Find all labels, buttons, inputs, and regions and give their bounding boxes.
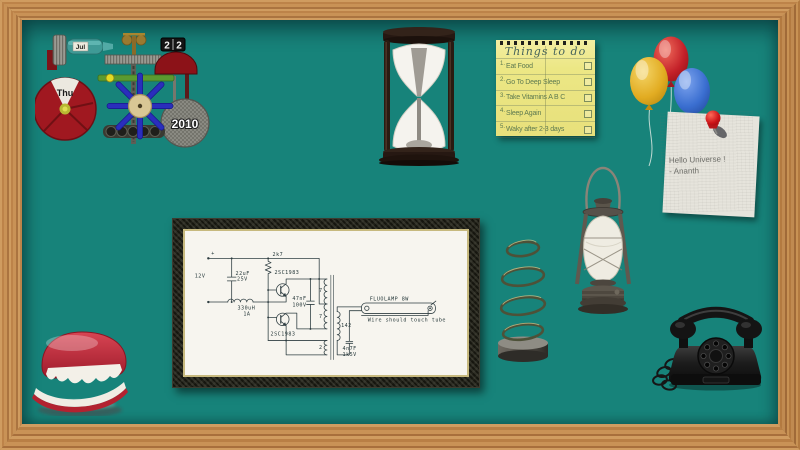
phone-rotary-dial bbox=[698, 338, 734, 374]
year-label: 2010 bbox=[172, 117, 199, 131]
todo-note-widget: Things to do 1. Eat Food 2. Go To Deep S… bbox=[496, 40, 595, 136]
todo-item-text: Eat Food bbox=[506, 63, 533, 70]
chalkboard-scene: Thu Jul bbox=[0, 0, 800, 450]
hourglass bbox=[376, 24, 462, 166]
note-crease bbox=[545, 46, 546, 134]
todo-item: 5. Waky after 2-3 days bbox=[496, 122, 595, 138]
wooden-frame-bottom bbox=[0, 424, 800, 450]
transistor-top-label: 2SC1983 bbox=[274, 270, 299, 276]
cap3-rating: 1k5V bbox=[343, 352, 357, 358]
cap1-rating: 25V bbox=[237, 276, 248, 282]
gear-ribbon bbox=[105, 55, 161, 64]
todo-item: 2. Go To Deep Sleep bbox=[496, 75, 595, 91]
lantern bbox=[559, 146, 649, 318]
todo-title: Things to do bbox=[496, 45, 595, 59]
day-label: Thu bbox=[57, 88, 74, 98]
todo-item-text: Take Vitamins A B C bbox=[506, 94, 565, 101]
framed-circuit-picture: 12V + 22uF 25V 330uH 1A 2k7 2SC1983 2SC1… bbox=[172, 218, 480, 388]
lamp-note: Wire should touch tube bbox=[368, 318, 446, 324]
todo-item-text: Sleep Again bbox=[506, 110, 541, 117]
pinned-note-widget: Hello Universe ! - Ananth bbox=[661, 112, 757, 215]
todo-item: 1. Eat Food bbox=[496, 59, 595, 75]
todo-item: 4. Sleep Again bbox=[496, 106, 595, 122]
winding-top-label: 7 bbox=[319, 288, 323, 294]
todo-checkbox[interactable] bbox=[584, 110, 592, 118]
winding-secondary-label: 142 bbox=[341, 323, 352, 329]
hourglass-icon bbox=[379, 27, 459, 166]
circuit-schematic: 12V + 22uF 25V 330uH 1A 2k7 2SC1983 2SC1… bbox=[185, 231, 467, 375]
note-line-2: - Ananth bbox=[669, 165, 726, 177]
resistor-label: 2k7 bbox=[273, 252, 284, 258]
spring-sculpture bbox=[489, 227, 557, 363]
wooden-frame-top bbox=[0, 0, 800, 20]
todo-item-text: Go To Deep Sleep bbox=[506, 79, 560, 86]
todo-item-text: Waky after 2-3 days bbox=[506, 126, 564, 133]
cap3-value: 4n7F bbox=[343, 346, 357, 352]
roller-chain bbox=[103, 125, 165, 138]
lantern-icon bbox=[577, 168, 629, 314]
mechanical-calendar-widget: Thu Jul bbox=[35, 28, 220, 150]
winding-mid-label: 7 bbox=[319, 314, 323, 320]
date-digit-left: 2 bbox=[164, 41, 170, 52]
supply-label: 12V bbox=[195, 274, 206, 280]
green-bar bbox=[98, 74, 174, 82]
inductor-rating: 1A bbox=[243, 312, 250, 318]
balloon-yellow bbox=[630, 57, 668, 110]
todo-item-number: 3. bbox=[500, 93, 505, 99]
todo-item-number: 5. bbox=[500, 124, 505, 130]
todo-item: 3. Take Vitamins A B C bbox=[496, 91, 595, 107]
spring-coil bbox=[500, 239, 546, 342]
todo-item-number: 4. bbox=[500, 108, 505, 114]
wooden-frame-left bbox=[0, 0, 22, 450]
todo-item-number: 1. bbox=[500, 61, 505, 67]
todo-checkbox[interactable] bbox=[584, 94, 592, 102]
date-digit-right: 2 bbox=[176, 41, 182, 52]
month-bottle: Jul bbox=[67, 39, 113, 54]
inductor-value: 330uH bbox=[238, 306, 256, 312]
chattering-teeth-toy bbox=[24, 326, 138, 416]
polarity-label: + bbox=[211, 251, 215, 257]
wooden-frame-right bbox=[778, 0, 800, 450]
note-line-1: Hello Universe ! bbox=[669, 154, 726, 166]
lamp-label: FLUOLAMP 8W bbox=[370, 297, 410, 303]
picture-frame-liner: 12V + 22uF 25V 330uH 1A 2k7 2SC1983 2SC1… bbox=[183, 229, 469, 377]
month-label: Jul bbox=[76, 44, 86, 51]
cap2-rating: 100V bbox=[292, 302, 306, 308]
todo-checkbox[interactable] bbox=[584, 78, 592, 86]
winding-feedback-label: 2 bbox=[319, 345, 323, 351]
propeller bbox=[107, 73, 173, 139]
transistor-bottom-label: 2SC1983 bbox=[271, 332, 296, 338]
todo-checkbox[interactable] bbox=[584, 62, 592, 70]
todo-checkbox[interactable] bbox=[584, 126, 592, 134]
rotary-telephone bbox=[645, 296, 770, 392]
pushpin-icon bbox=[701, 110, 731, 140]
screw-gear bbox=[53, 35, 66, 65]
cap2-value: 47nF bbox=[292, 296, 306, 302]
todo-item-number: 2. bbox=[500, 77, 505, 83]
